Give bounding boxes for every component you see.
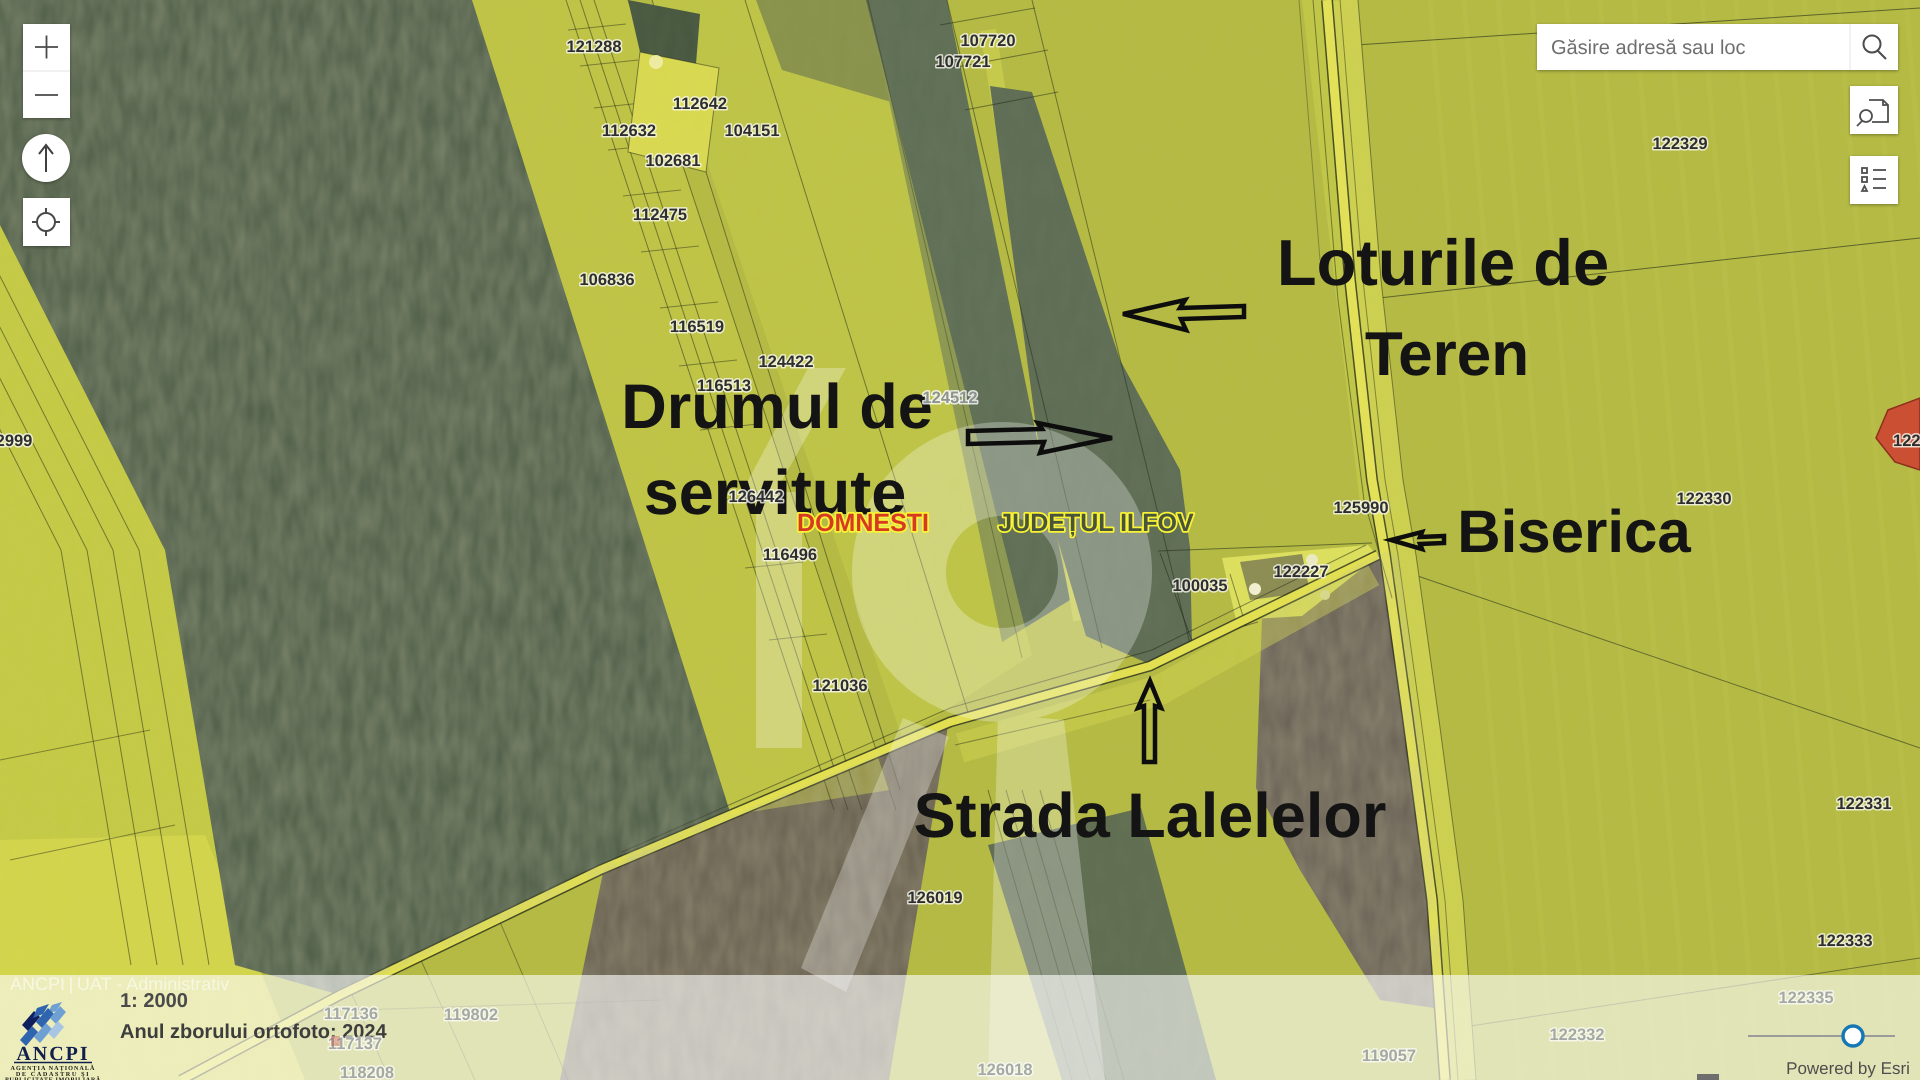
svg-text:125990: 125990 — [1333, 499, 1388, 517]
svg-text:121288: 121288 — [566, 38, 621, 56]
svg-text:1: 2000: 1: 2000 — [120, 990, 188, 1012]
svg-text:116513: 116513 — [697, 377, 751, 395]
svg-text:116496: 116496 — [763, 546, 817, 564]
svg-text:122333: 122333 — [1817, 932, 1872, 950]
svg-text:JUDEȚUL ILFOV: JUDEȚUL ILFOV — [998, 509, 1194, 537]
svg-text:12243: 12243 — [1893, 432, 1920, 450]
svg-text:124512: 124512 — [922, 389, 977, 407]
svg-text:ANCPI: ANCPI — [16, 1043, 89, 1065]
svg-text:126019: 126019 — [907, 889, 962, 907]
svg-text:118208: 118208 — [340, 1064, 394, 1080]
svg-text:122329: 122329 — [1652, 135, 1707, 153]
svg-text:122331: 122331 — [1836, 795, 1891, 813]
svg-text:Drumul de: Drumul de — [621, 372, 933, 442]
svg-text:106836: 106836 — [579, 271, 634, 289]
svg-text:122227: 122227 — [1273, 563, 1328, 581]
svg-text:107721: 107721 — [935, 53, 990, 71]
svg-text:119057: 119057 — [1362, 1047, 1416, 1065]
svg-text:Strada Lalelelor: Strada Lalelelor — [914, 781, 1387, 851]
svg-text:100035: 100035 — [1172, 577, 1227, 595]
svg-text:Găsire adresă sau loc: Găsire adresă sau loc — [1551, 37, 1746, 59]
svg-text:112475: 112475 — [633, 206, 687, 224]
svg-text:112632: 112632 — [602, 122, 656, 140]
svg-text:102681: 102681 — [645, 152, 700, 170]
svg-text:126442: 126442 — [728, 488, 783, 506]
svg-text:107720: 107720 — [960, 32, 1015, 50]
svg-text:121036: 121036 — [812, 677, 867, 695]
svg-text:124422: 124422 — [758, 353, 813, 371]
svg-text:Biserica: Biserica — [1457, 498, 1691, 565]
svg-text:117136: 117136 — [324, 1005, 378, 1023]
svg-text:126018: 126018 — [977, 1061, 1032, 1079]
svg-text:122330: 122330 — [1676, 490, 1731, 508]
svg-text:Loturile de: Loturile de — [1277, 226, 1609, 299]
svg-text:104151: 104151 — [724, 122, 779, 140]
svg-text:2999: 2999 — [0, 432, 32, 450]
svg-text:119802: 119802 — [444, 1006, 498, 1024]
svg-text:122335: 122335 — [1778, 989, 1833, 1007]
svg-text:DOMNESTI: DOMNESTI — [797, 509, 929, 537]
svg-text:PUBLICITATE IMOBILIARĂ: PUBLICITATE IMOBILIARĂ — [5, 1076, 101, 1081]
svg-text:Teren: Teren — [1365, 320, 1529, 389]
svg-text:112642: 112642 — [673, 95, 727, 113]
svg-text:Powered by Esri: Powered by Esri — [1786, 1059, 1910, 1078]
svg-text:116519: 116519 — [670, 318, 724, 336]
svg-text:122332: 122332 — [1549, 1026, 1604, 1044]
